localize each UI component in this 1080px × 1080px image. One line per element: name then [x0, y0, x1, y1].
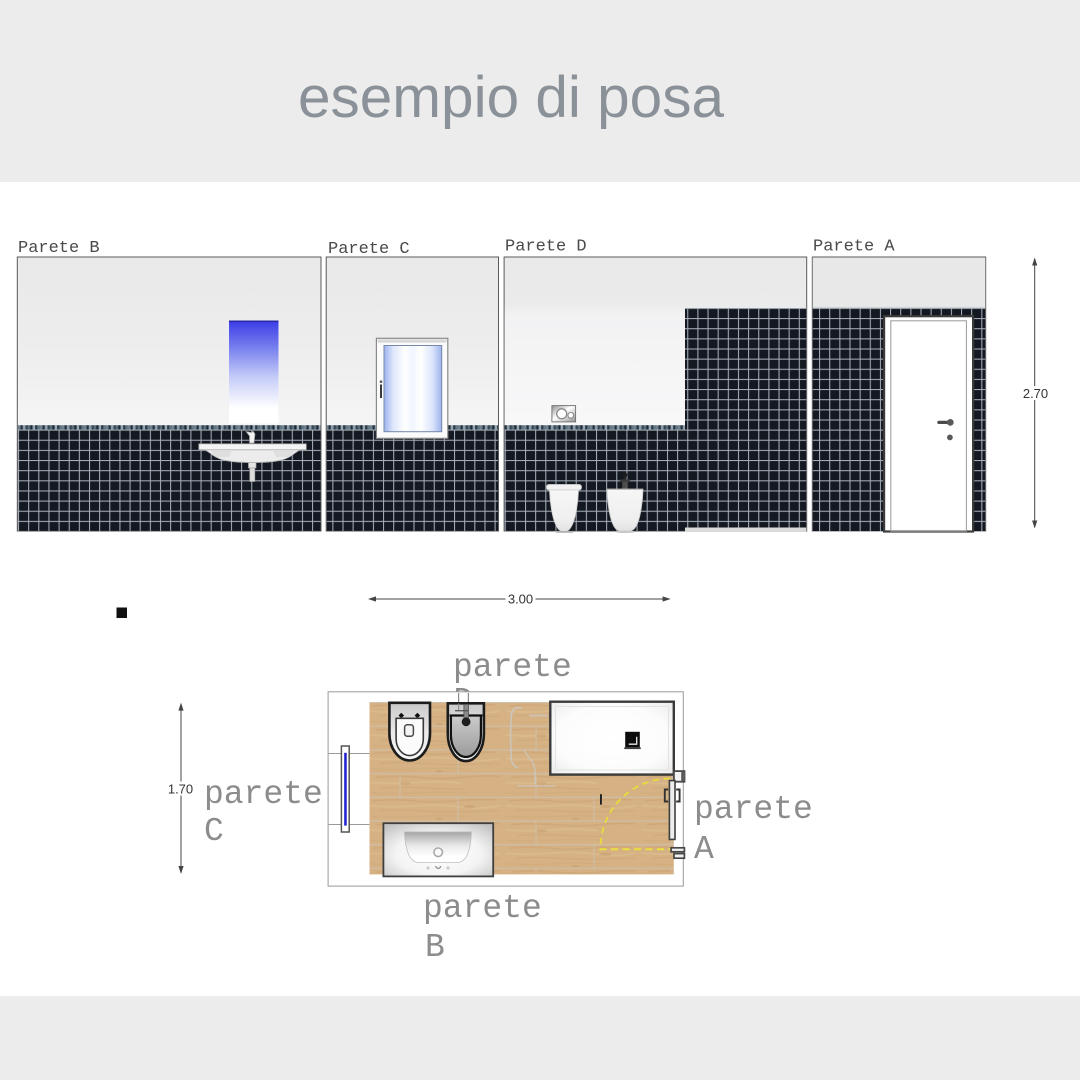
svg-text:parete: parete: [423, 890, 542, 927]
svg-text:parete: parete: [694, 791, 813, 828]
svg-text:esempio di posa: esempio di posa: [298, 65, 724, 130]
svg-text:parete: parete: [204, 776, 323, 813]
svg-text:3.00: 3.00: [508, 592, 533, 607]
svg-text:Parete C: Parete C: [328, 240, 410, 259]
svg-text:Parete A: Parete A: [813, 238, 895, 257]
svg-text:A: A: [694, 831, 714, 868]
svg-text:parete: parete: [453, 649, 572, 686]
svg-text:2.70: 2.70: [1023, 386, 1048, 401]
svg-text:Parete B: Parete B: [18, 239, 100, 258]
svg-text:B: B: [425, 929, 445, 966]
svg-text:1.70: 1.70: [168, 782, 193, 797]
svg-text:Parete D: Parete D: [505, 238, 587, 257]
svg-text:C: C: [204, 813, 224, 850]
